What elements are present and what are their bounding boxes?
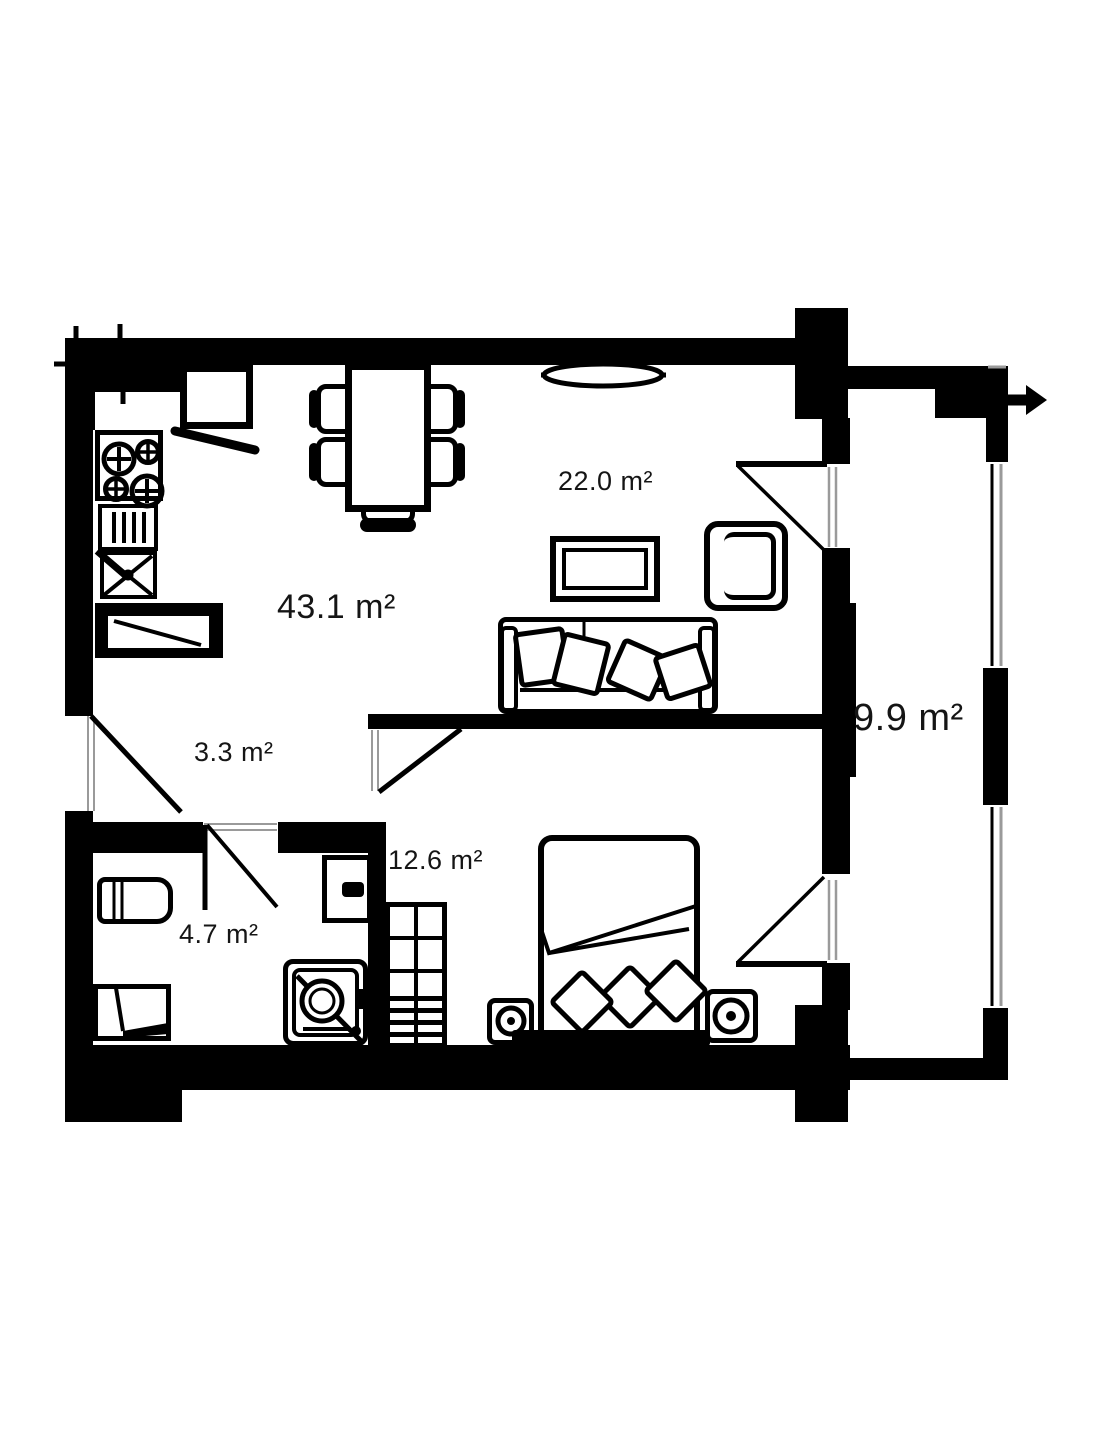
area-label-living: 22.0 m²: [558, 466, 653, 497]
area-label-balcony: 9.9 m²: [853, 697, 964, 740]
chair-back: [455, 443, 465, 481]
radiator: [541, 364, 666, 386]
entrance-door: [88, 716, 181, 812]
wall-bottom: [65, 1045, 850, 1090]
balcony-wall-right-mid: [983, 668, 1008, 805]
armchair-back: [724, 532, 776, 600]
pier-top-right: [795, 308, 848, 419]
balcony-wall-right-top: [986, 366, 1008, 462]
fridge-door: [175, 431, 255, 450]
wall-left-upper: [65, 338, 93, 716]
balcony-wall-bottom: [848, 1058, 1008, 1080]
area-label-hallway: 3.3 m²: [194, 737, 274, 768]
wall-top: [65, 338, 848, 365]
chair-back: [309, 390, 319, 428]
pier-bottom-left: [65, 1088, 182, 1122]
bedroom-door: [372, 729, 461, 792]
wall-right-a: [822, 418, 850, 464]
toilet: [97, 877, 173, 924]
balcony-wall-top: [848, 366, 1008, 389]
dining-table: [345, 363, 431, 512]
bathroom-door: [204, 824, 277, 910]
pier-bottom-right: [795, 1005, 848, 1122]
bedroom-balcony-door: [736, 877, 836, 964]
bath-cabinet-handle: [342, 882, 364, 897]
wall-living-bedroom: [368, 714, 825, 729]
floor-plan: 43.1 m² 22.0 m² 3.3 m² 12.6 m² 4.7 m² 9.…: [0, 0, 1113, 1440]
shower: [93, 984, 171, 1041]
area-label-bedroom: 12.6 m²: [388, 845, 483, 876]
fridge-cabinet: [180, 365, 253, 429]
stove: [95, 430, 163, 501]
bed-headboard: [512, 1030, 710, 1046]
wardrobe-drawers: [390, 996, 442, 1042]
washing-machine-inner: [292, 968, 359, 1037]
chair-back: [360, 518, 416, 532]
wall-bathroom-top-left: [90, 822, 203, 853]
area-label-kitchen-living: 43.1 m²: [277, 588, 396, 627]
wall-right-b-bulge: [837, 603, 856, 777]
chair-back: [309, 443, 319, 481]
balcony-entry-block: [935, 389, 987, 418]
dishwasher: [98, 504, 158, 551]
nightstand: [705, 989, 758, 1043]
wall-bathroom-top-right: [278, 822, 386, 853]
tv-screen: [562, 548, 648, 590]
kitchen-counter-top: [108, 616, 209, 648]
wall-right-c: [822, 963, 850, 1010]
washing-machine-handle: [356, 989, 372, 1009]
chair-back: [455, 390, 465, 428]
area-label-bathroom: 4.7 m²: [179, 919, 259, 950]
kitchen-sink: [100, 551, 157, 599]
